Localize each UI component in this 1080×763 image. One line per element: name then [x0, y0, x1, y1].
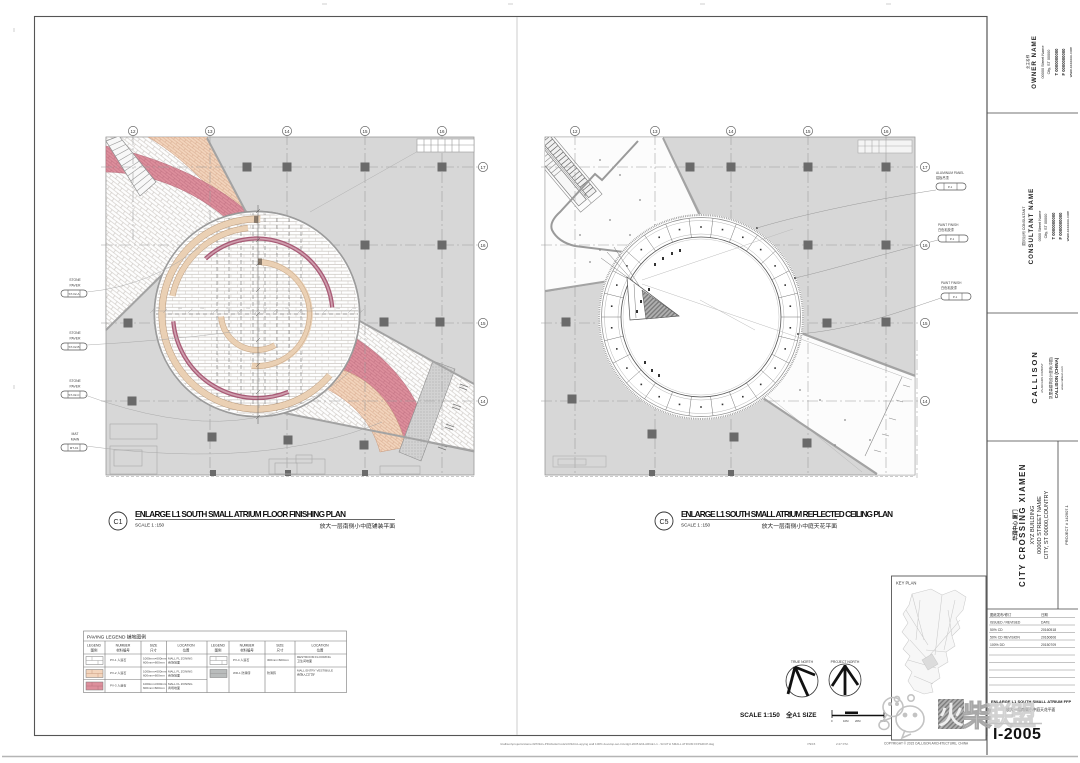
svg-text:PAINT FINISH: PAINT FINISH — [941, 281, 962, 285]
svg-text:ENLARGE L1 SOUTH SMALL ATRIUM: ENLARGE L1 SOUTH SMALL ATRIUM FLOOR FINI… — [135, 510, 346, 519]
svg-text:CITY, ST 00000,COUNTRY: CITY, ST 00000,COUNTRY — [1044, 491, 1050, 560]
svg-text:C5: C5 — [660, 519, 669, 526]
svg-text:白色乳胶漆: 白色乳胶漆 — [941, 285, 958, 290]
svg-text:铝板吊顶: 铝板吊顶 — [936, 175, 950, 180]
svg-text:2:27 P.M.: 2:27 P.M. — [836, 742, 849, 746]
svg-text:放大一层南侧小中庭天花平面: 放大一层南侧小中庭天花平面 — [762, 522, 838, 530]
svg-text:20150709: 20150709 — [1041, 643, 1056, 647]
svg-text:MAIN: MAIN — [71, 438, 80, 442]
svg-text:2500: 2500 — [259, 378, 261, 382]
svg-text:14: 14 — [922, 399, 928, 404]
svg-text:材料编号: 材料编号 — [116, 648, 130, 653]
svg-text:盟: 盟 — [1010, 701, 1036, 731]
svg-text:LEGEND: LEGEND — [211, 644, 225, 648]
svg-text:日期: 日期 — [1041, 612, 1048, 617]
svg-text:位置: 位置 — [183, 648, 190, 653]
svg-text:City, ST 00000: City, ST 00000 — [1047, 50, 1051, 75]
svg-text:City, ST 00000: City, ST 00000 — [1044, 214, 1048, 239]
svg-text:7/9/15: 7/9/15 — [807, 742, 816, 746]
svg-text:OWNER NAME: OWNER NAME — [1031, 35, 1038, 89]
svg-text:SIZE: SIZE — [150, 644, 158, 648]
svg-text:SCALE 1 :150: SCALE 1 :150 — [135, 523, 165, 528]
svg-text:T 0000000000: T 0000000000 — [1051, 212, 1056, 240]
svg-text:00000 Street Name: 00000 Street Name — [1041, 46, 1045, 79]
svg-text:1500: 1500 — [156, 308, 160, 310]
svg-text:尺寸: 尺寸 — [150, 648, 157, 653]
svg-text:顾问公司 CONSULTANT: 顾问公司 CONSULTANT — [1021, 206, 1026, 246]
svg-text:13: 13 — [652, 129, 658, 134]
svg-text:20M: 20M — [855, 719, 861, 723]
svg-text:50% CD REVISION: 50% CD REVISION — [990, 636, 1020, 640]
svg-text:防滑砖: 防滑砖 — [267, 670, 276, 675]
svg-text:STONE: STONE — [69, 379, 81, 383]
svg-text:1500: 1500 — [226, 308, 230, 310]
svg-text:NUMBER: NUMBER — [240, 644, 255, 648]
svg-text:PAVER: PAVER — [70, 337, 82, 341]
svg-text:2500: 2500 — [259, 404, 261, 408]
svg-text:600mm×600mm: 600mm×600mm — [143, 674, 165, 678]
svg-text:P-1: P-1 — [948, 185, 953, 189]
svg-text:CITY CROSSING XIAMEN: CITY CROSSING XIAMEN — [1018, 463, 1027, 587]
svg-text:50% CD: 50% CD — [990, 628, 1003, 632]
svg-text:10M: 10M — [843, 719, 849, 723]
svg-text:ST-02-A: ST-02-A — [68, 292, 79, 296]
svg-text:2500: 2500 — [259, 251, 261, 255]
svg-text:PROJECT # 142907.1: PROJECT # 142907.1 — [1064, 504, 1069, 545]
svg-text:1500: 1500 — [263, 308, 267, 310]
svg-text:\\callison\projects\xiamen\PD3: \\callison\projects\xiamen\PD3A\+PDAbuil… — [500, 742, 715, 746]
svg-text:2500: 2500 — [259, 352, 261, 356]
svg-text:0000 Street Name: 0000 Street Name — [1038, 211, 1042, 242]
svg-text:14: 14 — [728, 129, 734, 134]
svg-text:15: 15 — [922, 321, 928, 326]
svg-text:1500: 1500 — [310, 308, 314, 310]
svg-text:2500: 2500 — [259, 328, 261, 332]
svg-text:CONSULTANT NAME: CONSULTANT NAME — [1028, 188, 1035, 265]
svg-text:PAVER: PAVER — [70, 284, 82, 288]
svg-text:放大一层南侧小中庭铺装平面: 放大一层南侧小中庭铺装平面 — [320, 522, 396, 530]
svg-text:www.xxxxxxx.com: www.xxxxxxx.com — [1066, 211, 1070, 242]
svg-text:LOCATION: LOCATION — [177, 644, 195, 648]
svg-text:ENLARGE L1 SOUTH SMALL ATRIUM: ENLARGE L1 SOUTH SMALL ATRIUM REFLECTED … — [681, 510, 893, 519]
svg-text:PV-4 人造石: PV-4 人造石 — [233, 657, 249, 662]
svg-text:CALLISON (CHINA): CALLISON (CHINA) — [1054, 357, 1059, 398]
svg-text:图例: 图例 — [91, 648, 98, 653]
svg-text:P-1: P-1 — [953, 295, 958, 299]
svg-text:XYZ BUILDING: XYZ BUILDING — [1030, 506, 1036, 545]
svg-text:商场地面: 商场地面 — [168, 685, 180, 690]
svg-text:ST-02-B: ST-02-B — [68, 345, 79, 349]
svg-text:17: 17 — [480, 165, 486, 170]
svg-text:12: 12 — [130, 129, 136, 134]
svg-text:PAINT FINISH: PAINT FINISH — [938, 223, 959, 227]
svg-text:600mm×600mm: 600mm×600mm — [143, 661, 165, 665]
svg-text:NUMBER: NUMBER — [116, 644, 131, 648]
svg-text:16: 16 — [480, 243, 486, 248]
svg-text:凯里森建筑设计咨询(中国): 凯里森建筑设计咨询(中国) — [1048, 357, 1053, 399]
svg-text:尺寸: 尺寸 — [277, 648, 284, 653]
svg-text:全A1 SIZE: 全A1 SIZE — [785, 710, 817, 719]
svg-text:100% DD: 100% DD — [990, 643, 1005, 647]
svg-text:卫生间地面: 卫生间地面 — [297, 658, 312, 663]
svg-text:COPYRIGHT © 2015 CALLISON ARCH: COPYRIGHT © 2015 CALLISON ARCHITECTURE, … — [884, 742, 969, 746]
svg-text:PV-2 人造石: PV-2 人造石 — [110, 670, 126, 675]
svg-text:ISSUED / REVISED: ISSUED / REVISED — [990, 621, 1021, 625]
svg-text:STONE: STONE — [69, 331, 81, 335]
svg-text:PV-1 人造石: PV-1 人造石 — [110, 657, 126, 662]
svg-text:T 0000000000: T 0000000000 — [1054, 48, 1059, 76]
svg-text:F 0000000000: F 0000000000 — [1058, 212, 1063, 240]
svg-text:1500: 1500 — [200, 308, 204, 310]
svg-text:SCALE 1 :150: SCALE 1 :150 — [681, 523, 711, 528]
svg-text:20160606: 20160606 — [1041, 636, 1056, 640]
svg-text:AN ARCADIS COMPANY: AN ARCADIS COMPANY — [1040, 363, 1044, 393]
svg-text:商场地面: 商场地面 — [168, 660, 180, 665]
svg-text:www.callison.com: www.callison.com — [1060, 366, 1064, 390]
svg-text:13: 13 — [207, 129, 213, 134]
svg-text:白色乳胶漆: 白色乳胶漆 — [938, 227, 955, 232]
svg-text:15: 15 — [362, 129, 368, 134]
svg-text:C1: C1 — [114, 519, 123, 526]
svg-text:火: 火 — [938, 702, 963, 730]
svg-text:图纸发布/修订: 图纸发布/修订 — [990, 612, 1012, 617]
svg-text:20160518: 20160518 — [1041, 628, 1056, 632]
svg-text:ST-02-C: ST-02-C — [68, 393, 80, 397]
svg-text:300mm×600mm: 300mm×600mm — [267, 658, 289, 662]
svg-text:MAT: MAT — [72, 432, 79, 436]
svg-text:1500: 1500 — [246, 308, 250, 310]
svg-text:15: 15 — [805, 129, 811, 134]
svg-text:1500: 1500 — [178, 308, 182, 310]
svg-text:图例: 图例 — [215, 648, 222, 653]
svg-text:C A L L I S O N: C A L L I S O N — [1030, 352, 1039, 403]
svg-text:2500: 2500 — [259, 276, 261, 280]
svg-text:600mm×600mm: 600mm×600mm — [143, 686, 165, 690]
svg-text:商场入口门厅: 商场入口门厅 — [297, 672, 315, 677]
svg-text:LOCATION: LOCATION — [311, 644, 329, 648]
svg-text:0000D STREET NAME: 0000D STREET NAME — [1037, 496, 1043, 554]
svg-text:15: 15 — [480, 321, 486, 326]
svg-text:PAVER: PAVER — [70, 385, 82, 389]
svg-text:1500: 1500 — [352, 308, 356, 310]
svg-text:1500: 1500 — [336, 308, 340, 310]
svg-text:WR-1 防滑砖: WR-1 防滑砖 — [233, 670, 251, 675]
svg-text:16: 16 — [439, 129, 445, 134]
svg-text:ALUMINUM PANEL: ALUMINUM PANEL — [936, 171, 964, 175]
svg-text:业主名称: 业主名称 — [1025, 54, 1030, 69]
svg-text:SCALE 1:150: SCALE 1:150 — [740, 712, 780, 719]
svg-text:位置: 位置 — [317, 648, 324, 653]
svg-text:PAVING LEGEND 铺地图例: PAVING LEGEND 铺地图例 — [87, 634, 146, 641]
svg-text:材料编号: 材料编号 — [240, 648, 254, 653]
svg-text:SIZE: SIZE — [276, 644, 284, 648]
svg-text:1500: 1500 — [285, 308, 289, 310]
svg-text:TRUE NORTH: TRUE NORTH — [791, 660, 814, 664]
svg-text:PV-3 人造石: PV-3 人造石 — [110, 683, 126, 688]
svg-text:MT-01: MT-01 — [70, 446, 79, 450]
svg-text:14: 14 — [480, 399, 486, 404]
svg-text:12: 12 — [572, 129, 578, 134]
svg-text:2500: 2500 — [259, 301, 261, 305]
svg-text:16: 16 — [883, 129, 889, 134]
svg-text:STONE: STONE — [69, 278, 81, 282]
svg-text:P-1: P-1 — [950, 237, 955, 241]
svg-text:LEGEND: LEGEND — [87, 644, 101, 648]
svg-text:PROJECT NORTH: PROJECT NORTH — [831, 660, 860, 664]
svg-text:2500: 2500 — [259, 224, 261, 228]
svg-text:DATE: DATE — [1041, 621, 1051, 625]
svg-text:14: 14 — [284, 129, 290, 134]
svg-text:16: 16 — [922, 243, 928, 248]
svg-text:17: 17 — [922, 165, 928, 170]
svg-text:F 0000000000: F 0000000000 — [1061, 48, 1066, 76]
svg-text:www.xxxxxxx.com: www.xxxxxxx.com — [1069, 47, 1073, 78]
svg-text:商场地面: 商场地面 — [168, 673, 180, 678]
svg-text:KEY PLAN: KEY PLAN — [896, 581, 916, 586]
